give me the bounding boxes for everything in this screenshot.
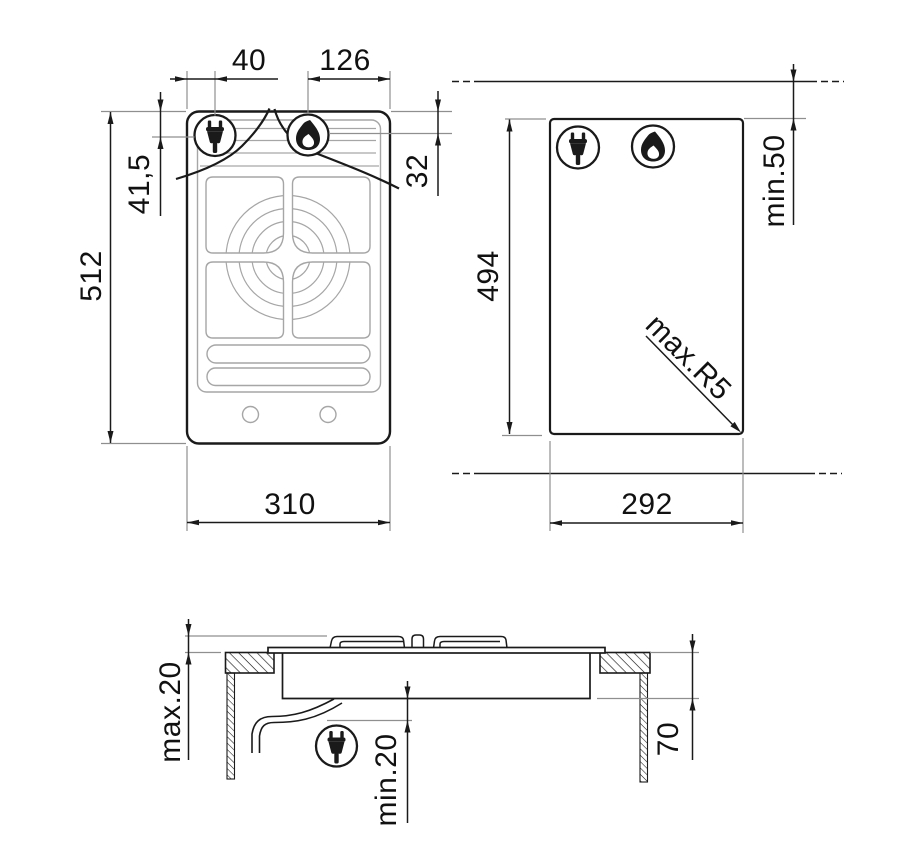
flame-icon bbox=[288, 115, 329, 156]
dim-flame-from-top: 32 bbox=[403, 154, 433, 188]
dim-flame-zone: 126 bbox=[319, 46, 371, 76]
worktop-right bbox=[600, 653, 650, 674]
cabinet-panel-left bbox=[227, 673, 235, 779]
dim-cutout-height: 494 bbox=[474, 250, 504, 302]
dim-cable-clearance: min.20 bbox=[372, 733, 402, 826]
plug-icon bbox=[557, 127, 599, 169]
flame-icon bbox=[632, 126, 674, 168]
dim-plug-from-top: 41,5 bbox=[125, 154, 155, 214]
dim-hob-height: 512 bbox=[77, 250, 107, 302]
plug-icon bbox=[316, 726, 357, 767]
dim-recess-depth: 70 bbox=[654, 722, 684, 756]
dim-plug-from-left: 40 bbox=[232, 46, 266, 76]
hob-plate bbox=[268, 648, 605, 654]
worktop-left bbox=[226, 653, 275, 674]
plug-icon bbox=[195, 115, 236, 156]
technical-drawing bbox=[0, 0, 911, 849]
dim-wall-clearance: min.50 bbox=[760, 134, 790, 227]
dim-above-worktop: max.20 bbox=[156, 661, 186, 762]
cabinet-panel-right bbox=[640, 673, 648, 782]
dim-cutout-width: 292 bbox=[621, 490, 673, 520]
technical-drawing-canvas: 40 126 41,5 32 512 310 494 292 min.50 ma… bbox=[0, 0, 911, 849]
dim-hob-width: 310 bbox=[264, 490, 316, 520]
